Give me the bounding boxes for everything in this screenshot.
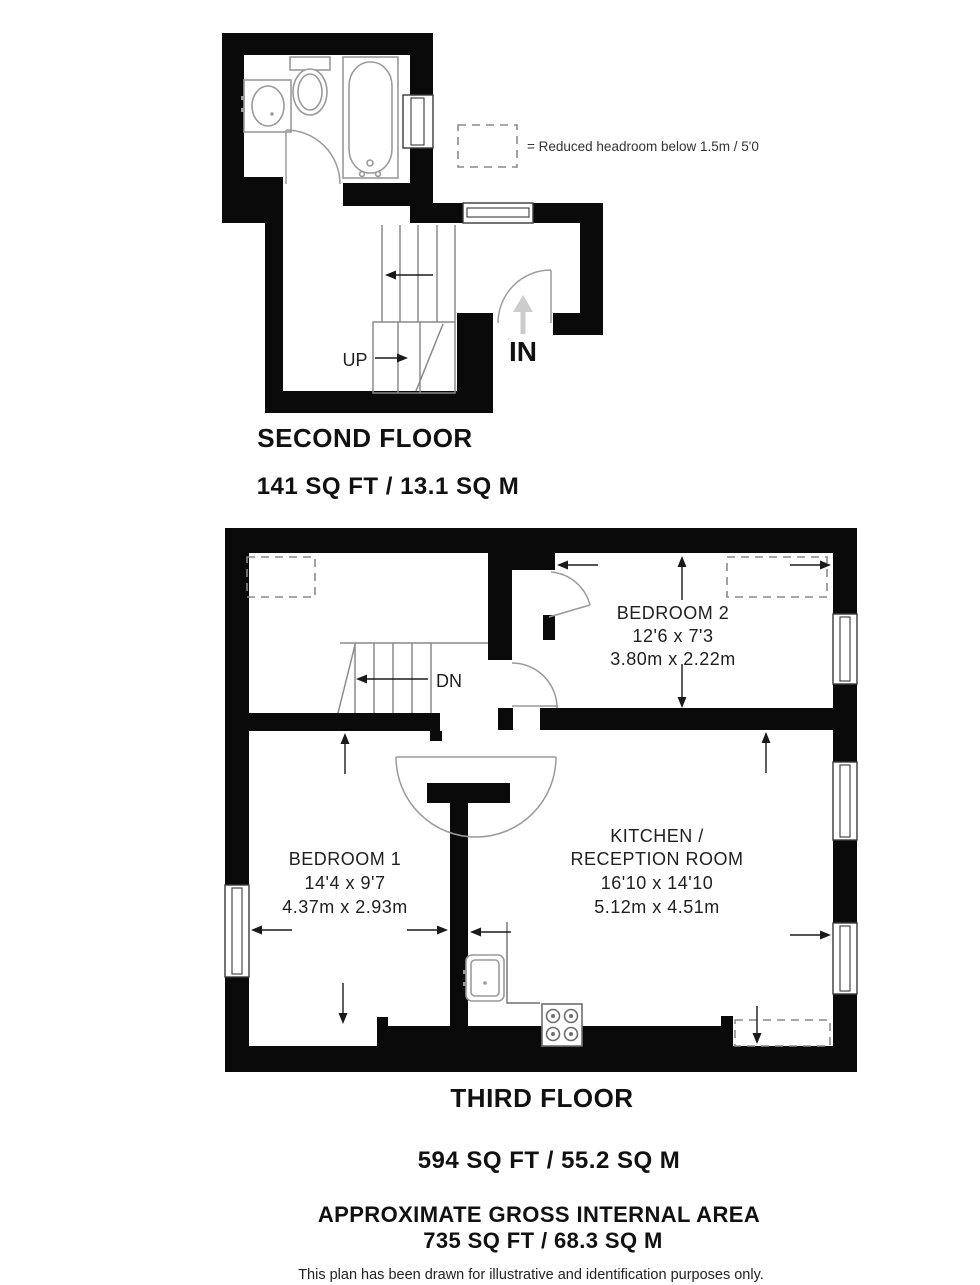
gross-area-title: APPROXIMATE GROSS INTERNAL AREA	[318, 1202, 760, 1227]
bedroom1-label-group: BEDROOM 1 14'4 x 9'7 4.37m x 2.93m	[282, 849, 408, 917]
second-floor-title: SECOND FLOOR	[257, 423, 472, 453]
bedroom2-dims-metric: 3.80m x 2.22m	[610, 649, 736, 669]
bedroom1-name: BEDROOM 1	[289, 849, 402, 869]
bedroom2-label-group: BEDROOM 2 12'6 x 7'3 3.80m x 2.22m	[610, 603, 736, 669]
kitchen-dims-metric: 5.12m x 4.51m	[594, 897, 720, 917]
reduced-headroom-zone-kitchen	[735, 1020, 830, 1046]
stairs-up: UP	[342, 225, 455, 393]
landing-door	[512, 663, 558, 708]
bedroom1-window	[225, 885, 249, 977]
third-floor-title: THIRD FLOOR	[450, 1083, 633, 1113]
bedroom1-dims-metric: 4.37m x 2.93m	[282, 897, 408, 917]
floorplan-page: UP IN = Reduced headroom below 1.5m / 5'…	[0, 0, 980, 1285]
entry-label: IN	[509, 336, 537, 367]
bedroom2-window	[833, 614, 857, 684]
kitchen-window-lower	[833, 923, 857, 994]
bedroom2-dims-imperial: 12'6 x 7'3	[633, 626, 714, 646]
third-floor-walls	[225, 528, 857, 1072]
reduced-headroom-zone-bedroom2	[727, 557, 827, 597]
legend: = Reduced headroom below 1.5m / 5'0	[458, 125, 759, 167]
bathroom-window	[403, 95, 433, 148]
third-floor-area: 594 SQ FT / 55.2 SQ M	[418, 1147, 681, 1174]
third-floor-plan: DN	[225, 528, 857, 1072]
bedroom1-dims-imperial: 14'4 x 9'7	[305, 873, 386, 893]
toilet	[290, 57, 330, 115]
floorplan-canvas: UP IN = Reduced headroom below 1.5m / 5'…	[0, 0, 980, 1285]
bedroom2-name: BEDROOM 2	[617, 603, 730, 623]
second-floor-area: 141 SQ FT / 13.1 SQ M	[257, 473, 520, 500]
kitchen-name-line2: RECEPTION ROOM	[570, 849, 743, 869]
gross-area-value: 735 SQ FT / 68.3 SQ M	[423, 1228, 663, 1253]
kitchen-name-line1: KITCHEN /	[610, 826, 704, 846]
entry-window	[463, 203, 533, 223]
stairs-down: DN	[338, 643, 488, 713]
dimension-arrows	[251, 556, 831, 1044]
legend-swatch	[458, 125, 517, 167]
bathroom-sink	[241, 80, 291, 132]
kitchen-dims-imperial: 16'10 x 14'10	[601, 873, 713, 893]
reduced-headroom-zone-stairs	[247, 557, 315, 597]
kitchen-counter	[507, 922, 540, 1003]
second-floor-plan: UP IN	[222, 33, 603, 413]
bathroom-door	[286, 130, 340, 184]
entry-arrow-icon	[513, 295, 533, 334]
legend-label: = Reduced headroom below 1.5m / 5'0	[527, 139, 759, 154]
kitchen-window-upper	[833, 762, 857, 840]
disclaimer: This plan has been drawn for illustrativ…	[298, 1267, 764, 1283]
stairs-down-label: DN	[436, 671, 462, 691]
kitchen-label-group: KITCHEN / RECEPTION ROOM 16'10 x 14'10 5…	[570, 826, 743, 917]
kitchen-sink	[463, 955, 504, 1001]
bathtub	[343, 57, 398, 178]
bedroom2-door	[549, 572, 590, 617]
stairs-up-label: UP	[342, 350, 367, 370]
stove-hob	[542, 1004, 582, 1046]
